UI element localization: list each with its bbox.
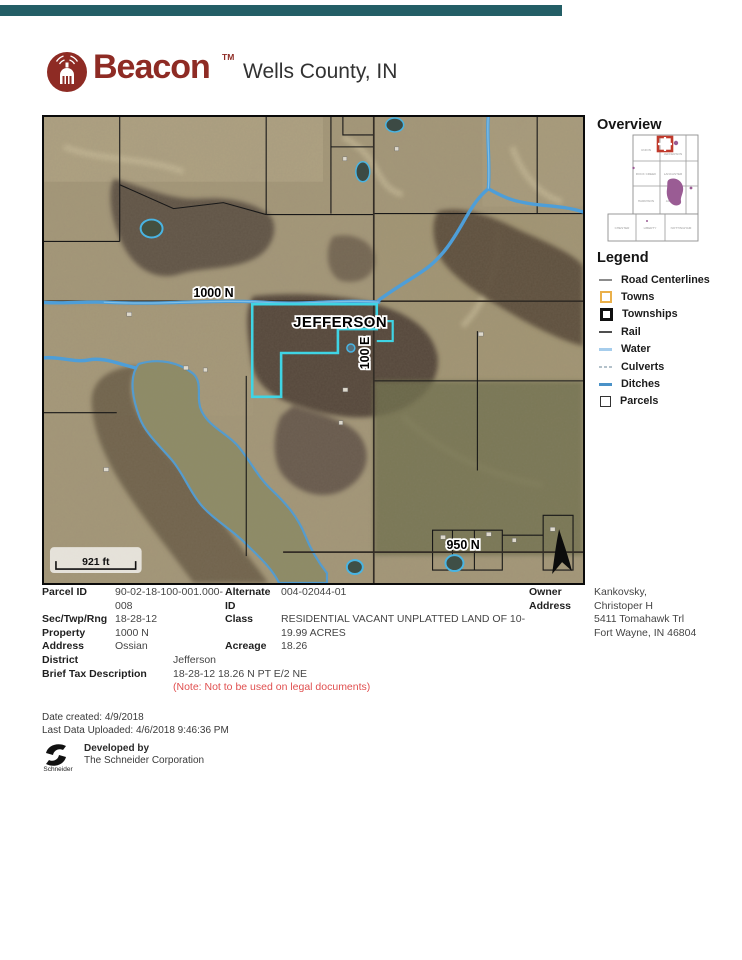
beacon-tm: TM (222, 52, 234, 62)
ov-township: LIBERTY (644, 226, 657, 230)
scale-bar-text: 921 ft (82, 557, 110, 568)
ov-township: LANCASTER (664, 172, 683, 176)
tax-description-label: Brief Tax Description (42, 668, 173, 682)
culverts-swatch-icon (599, 360, 612, 373)
property-address-value: 1000 N Ossian (115, 627, 227, 654)
parcels-swatch-icon (600, 396, 611, 407)
parcel-id-value: 90-02-18-100-001.000- 008 (115, 586, 227, 613)
acreage-value: 18.26 (281, 640, 533, 654)
class-value: RESIDENTIAL VACANT UNPLATTED LAND OF 10-… (281, 613, 533, 640)
parcel-id-label: Parcel ID (42, 586, 115, 613)
towns-swatch-icon (600, 291, 612, 303)
legend-item-ditches: Ditches (599, 375, 710, 392)
legend-item-towns: Towns (599, 288, 710, 305)
ov-township: ROCK CREEK (636, 172, 657, 176)
top-teal-bar (0, 5, 562, 16)
legend-title: Legend (597, 250, 649, 266)
legal-note: (Note: Not to be used on legal documents… (173, 681, 473, 695)
sec-twp-rng-value: 18-28-12 (115, 613, 227, 627)
legend-item-water: Water (599, 341, 710, 358)
ov-township: NOTTINGHAM (671, 226, 692, 230)
district-label: District (42, 654, 173, 668)
legend-item-rail: Rail (599, 323, 710, 340)
scale-bar: 921 ft (50, 547, 142, 573)
developed-by-label: Developed by (84, 743, 149, 754)
map-label-950n: 950 N (447, 538, 480, 552)
legend-item-parcels: Parcels (599, 393, 710, 410)
sec-twp-rng-label: Sec/Twp/Rng (42, 613, 115, 627)
legend-item-townships: Townships (599, 306, 710, 323)
ditches-swatch-icon (599, 378, 612, 391)
ov-township: HARRISON (638, 199, 654, 203)
schneider-company: The Schneider Corporation (84, 755, 204, 766)
schneider-wordmark: Schneider (38, 766, 78, 773)
aerial-parcel-map: 1000 N JEFFERSON 100 E 950 N 921 ft (42, 115, 585, 585)
beacon-logo-icon (46, 51, 88, 98)
county-title: Wells County, IN (243, 60, 397, 84)
beacon-brand-text: Beacon (93, 48, 210, 87)
road-centerlines-swatch-icon (599, 273, 612, 286)
legend-item-road-centerlines: Road Centerlines (599, 271, 710, 288)
tax-description-value: 18-28-12 18.26 N PT E/2 NE (173, 668, 473, 682)
last-data-uploaded: Last Data Uploaded: 4/6/2018 9:46:36 PM (42, 725, 229, 736)
alternate-id-label: Alternate ID (225, 586, 281, 613)
water-swatch-icon (599, 343, 612, 356)
class-label: Class (225, 613, 281, 640)
rail-swatch-icon (599, 325, 612, 338)
townships-swatch-icon (600, 308, 613, 321)
district-value: Jefferson (173, 654, 473, 668)
ov-township: UNION (641, 148, 651, 152)
legend-item-culverts: Culverts (599, 358, 710, 375)
map-label-jefferson: JEFFERSON (293, 314, 387, 331)
owner-address-value: Kankovsky, Christoper H 5411 Tomahawk Tr… (594, 586, 742, 640)
ov-township: JEFFERSON (664, 152, 682, 156)
date-created: Date created: 4/9/2018 (42, 712, 144, 723)
overview-inset-map: UNION JEFFERSON ROCK CREEK LANCASTER HAR… (600, 131, 728, 249)
owner-address-label: Owner Address (529, 586, 594, 640)
page: Beacon TM Wells County, IN (0, 0, 742, 960)
alternate-id-value: 004-02044-01 (281, 586, 533, 613)
property-address-label: Property Address (42, 627, 115, 654)
legend: Road Centerlines Towns Townships Rail Wa… (599, 271, 710, 410)
map-label-1000n: 1000 N (193, 286, 233, 300)
ov-township: CHESTER (615, 226, 631, 230)
map-label-100e: 100 E (358, 337, 372, 370)
acreage-label: Acreage (225, 640, 281, 654)
